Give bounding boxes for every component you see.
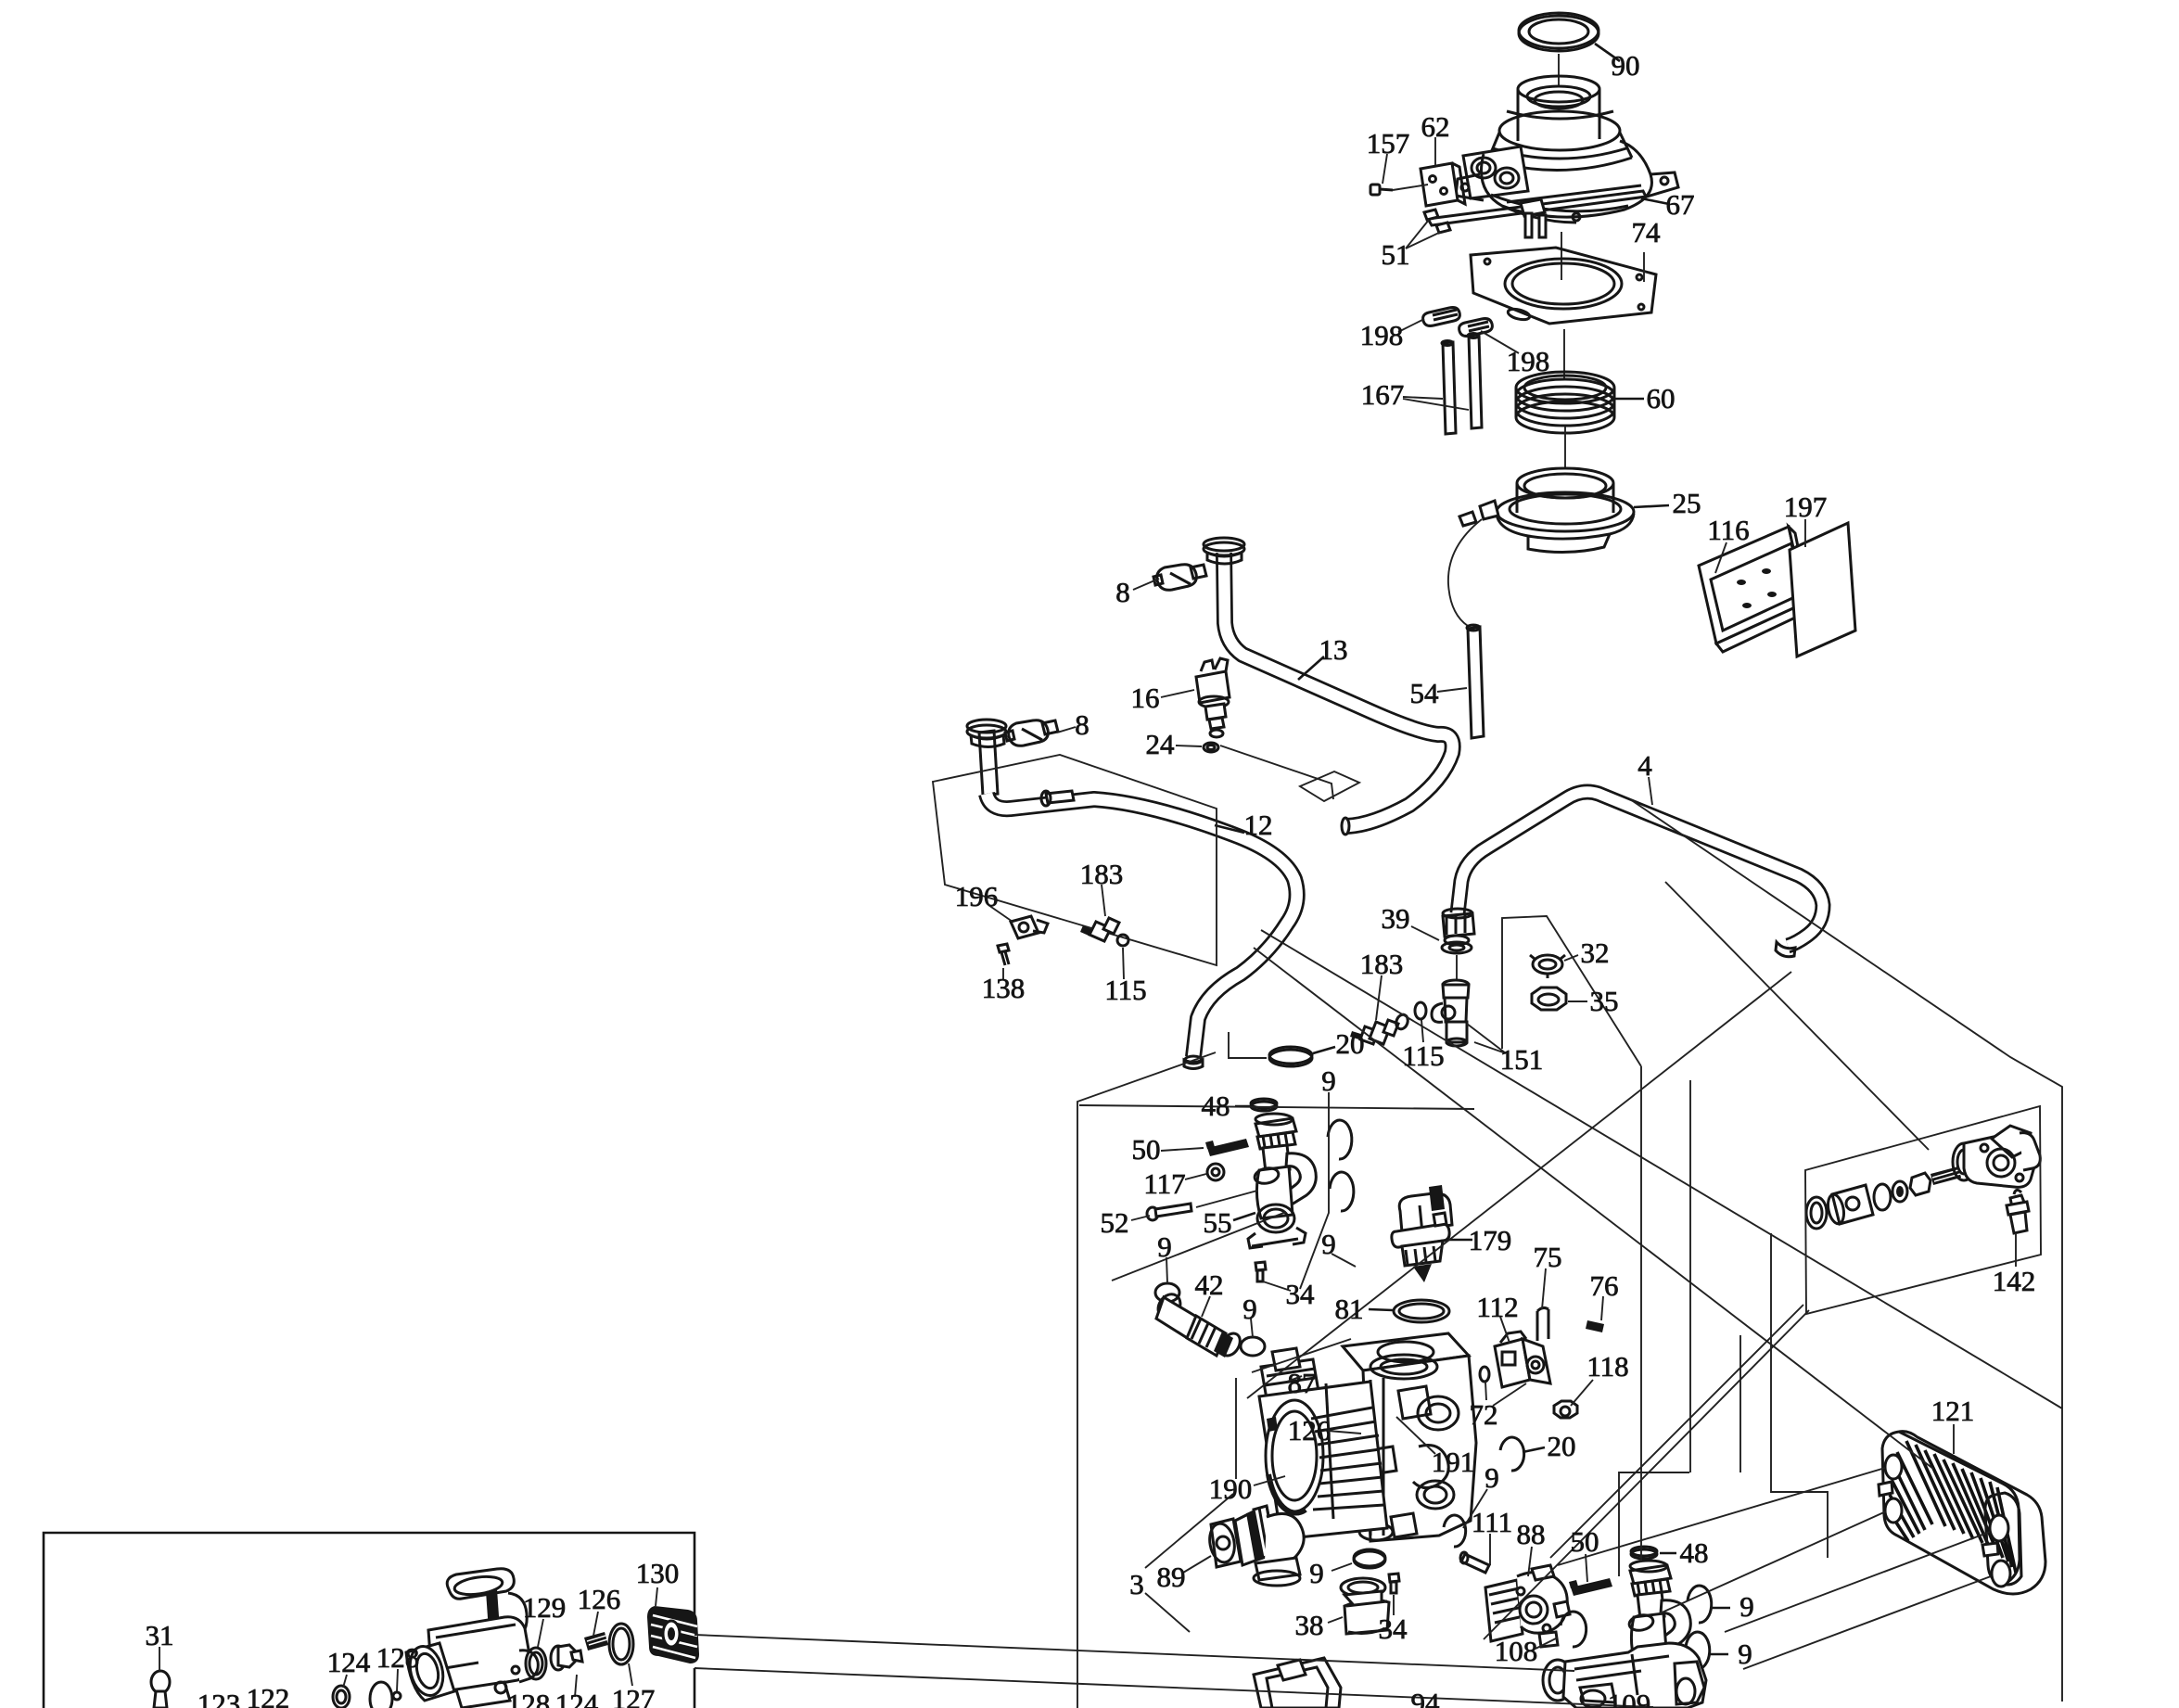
svg-text:128: 128 [376,1641,420,1674]
svg-text:94: 94 [1411,1687,1441,1708]
svg-text:9: 9 [1157,1230,1172,1263]
svg-text:121: 121 [1931,1395,1975,1427]
svg-text:89: 89 [1157,1561,1186,1593]
svg-text:124: 124 [555,1688,599,1708]
svg-text:42: 42 [1195,1268,1224,1301]
svg-text:151: 151 [1500,1043,1544,1076]
svg-text:183: 183 [1080,858,1124,890]
svg-text:115: 115 [1402,1039,1444,1072]
svg-text:138: 138 [982,972,1026,1004]
svg-text:50: 50 [1132,1133,1161,1166]
svg-text:34: 34 [1379,1612,1408,1645]
svg-text:72: 72 [1470,1398,1498,1431]
svg-text:157: 157 [1367,127,1410,159]
svg-text:55: 55 [1204,1206,1232,1239]
svg-text:9: 9 [1321,1064,1336,1097]
svg-text:9: 9 [1485,1461,1499,1494]
svg-text:12: 12 [1244,809,1273,841]
svg-text:142: 142 [1993,1265,2036,1297]
svg-text:25: 25 [1673,487,1701,519]
svg-text:108: 108 [1495,1635,1538,1667]
svg-text:32: 32 [1581,937,1610,969]
svg-text:191: 191 [1432,1446,1475,1478]
svg-text:24: 24 [1146,728,1176,760]
svg-text:9: 9 [1242,1293,1257,1325]
svg-text:112: 112 [1476,1291,1518,1323]
svg-text:54: 54 [1410,677,1440,709]
svg-text:48: 48 [1202,1090,1230,1122]
svg-text:130: 130 [636,1557,680,1589]
svg-text:116: 116 [1707,514,1749,546]
svg-text:74: 74 [1632,216,1662,249]
svg-text:9: 9 [1739,1590,1754,1623]
svg-text:167: 167 [1361,378,1405,411]
svg-text:90: 90 [1612,49,1640,82]
svg-text:76: 76 [1590,1269,1619,1302]
svg-text:20: 20 [1336,1027,1365,1060]
svg-text:13: 13 [1319,633,1348,666]
svg-text:129: 129 [523,1591,567,1624]
svg-text:196: 196 [955,880,999,912]
svg-text:123: 123 [198,1688,241,1708]
svg-text:115: 115 [1104,974,1146,1006]
svg-text:34: 34 [1286,1278,1316,1310]
svg-text:117: 117 [1143,1167,1185,1200]
svg-text:126: 126 [1288,1414,1332,1447]
svg-text:20: 20 [1548,1430,1576,1462]
svg-text:50: 50 [1571,1525,1599,1558]
svg-text:198: 198 [1360,319,1404,351]
svg-text:31: 31 [146,1619,174,1651]
svg-text:124: 124 [327,1646,371,1678]
svg-text:128: 128 [507,1688,551,1708]
svg-text:16: 16 [1131,682,1160,714]
svg-text:179: 179 [1469,1224,1512,1256]
svg-text:52: 52 [1101,1206,1129,1239]
svg-text:190: 190 [1209,1472,1253,1505]
svg-text:39: 39 [1382,902,1410,935]
svg-text:118: 118 [1586,1350,1628,1383]
svg-text:8: 8 [1115,576,1130,608]
svg-text:127: 127 [612,1683,656,1708]
svg-text:3: 3 [1129,1568,1144,1600]
svg-text:122: 122 [247,1682,290,1708]
svg-text:109: 109 [1608,1688,1651,1708]
svg-text:75: 75 [1534,1241,1562,1273]
svg-text:9: 9 [1309,1557,1324,1589]
svg-text:67: 67 [1666,188,1695,221]
svg-text:4: 4 [1637,749,1652,782]
svg-text:111: 111 [1472,1506,1512,1538]
svg-text:88: 88 [1517,1518,1546,1550]
svg-text:62: 62 [1421,110,1450,143]
svg-text:126: 126 [578,1583,621,1615]
svg-text:87: 87 [1288,1367,1317,1399]
svg-text:9: 9 [1738,1638,1752,1670]
svg-text:183: 183 [1360,948,1404,980]
svg-text:38: 38 [1295,1609,1324,1641]
svg-text:35: 35 [1590,985,1619,1017]
svg-text:81: 81 [1335,1293,1364,1325]
svg-text:197: 197 [1784,491,1828,523]
svg-text:48: 48 [1680,1536,1709,1569]
svg-text:198: 198 [1507,345,1550,377]
svg-text:8: 8 [1075,708,1089,741]
svg-text:51: 51 [1382,238,1410,271]
svg-text:60: 60 [1647,382,1676,414]
